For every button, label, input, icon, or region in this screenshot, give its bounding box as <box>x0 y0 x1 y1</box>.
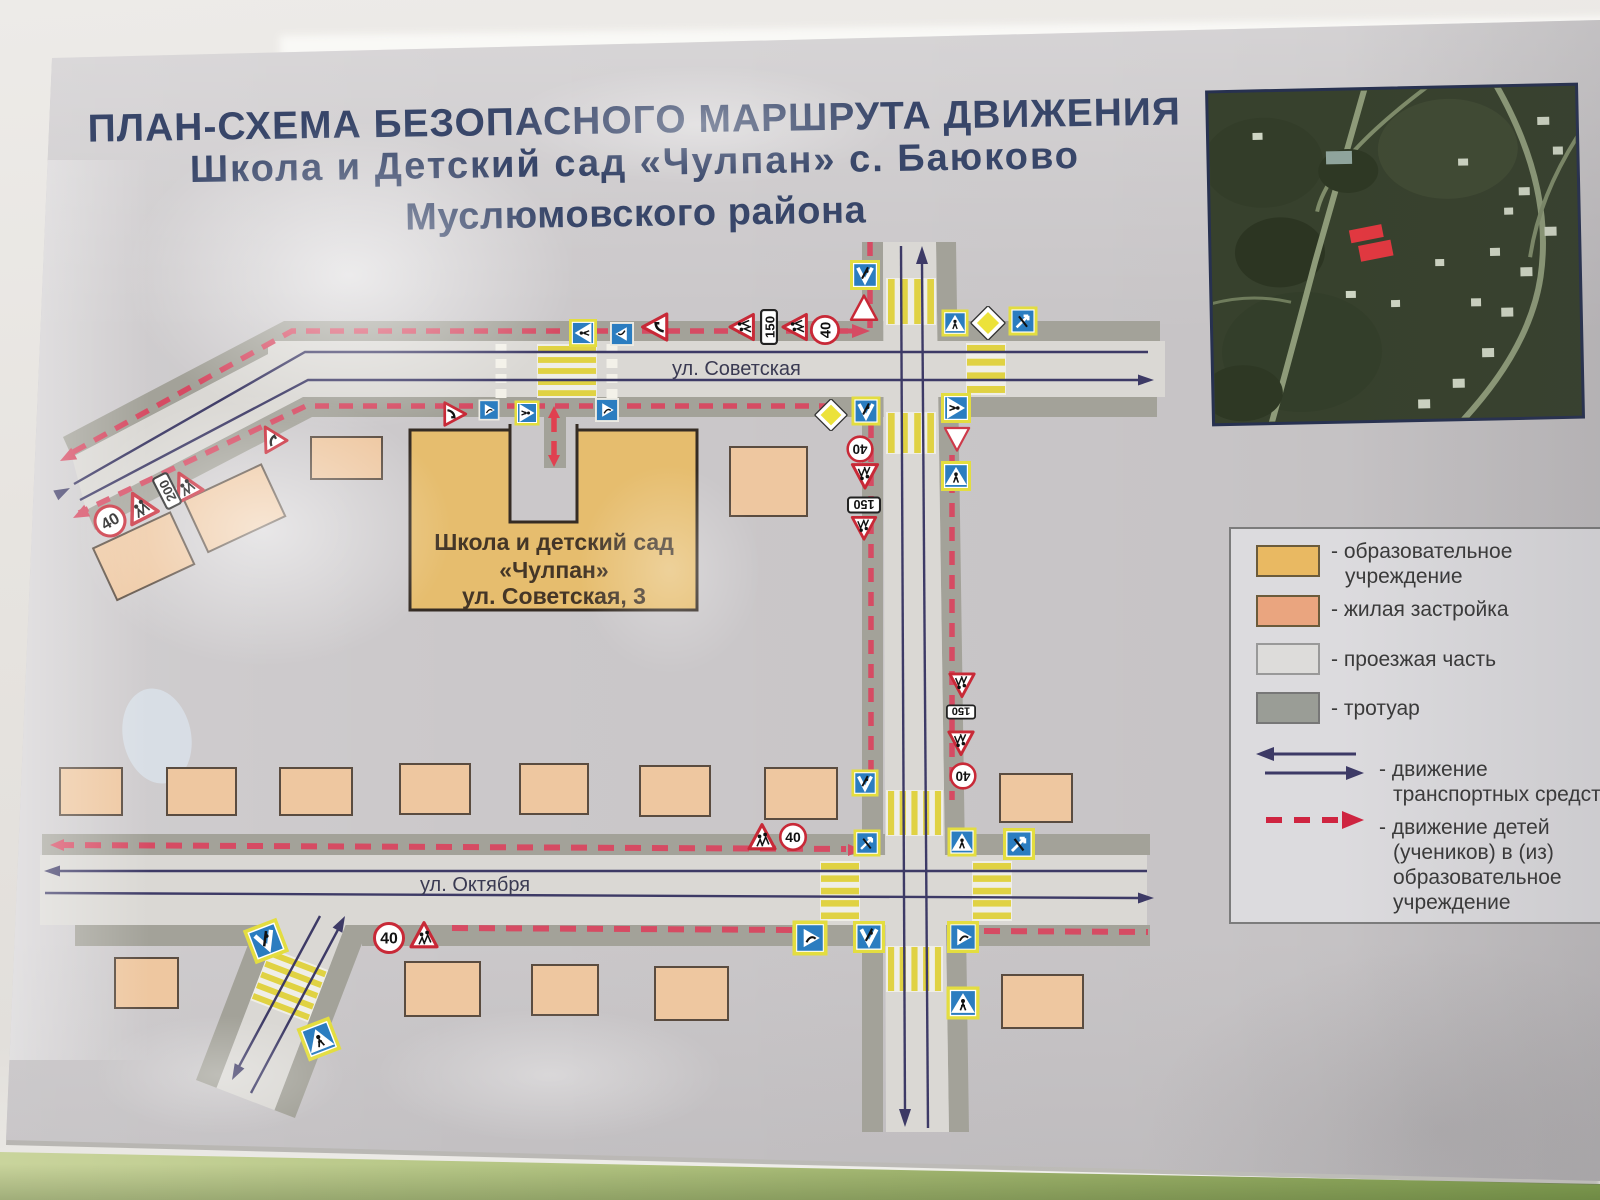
svg-text:ул. Советская, 3: ул. Советская, 3 <box>462 583 646 609</box>
svg-text:«Чулпан»: «Чулпан» <box>499 557 608 583</box>
svg-text:ул. Советская: ул. Советская <box>672 358 801 380</box>
svg-text:Школа и детский сад: Школа и детский сад <box>434 529 674 555</box>
svg-text:ул. Октября: ул. Октября <box>420 874 530 896</box>
